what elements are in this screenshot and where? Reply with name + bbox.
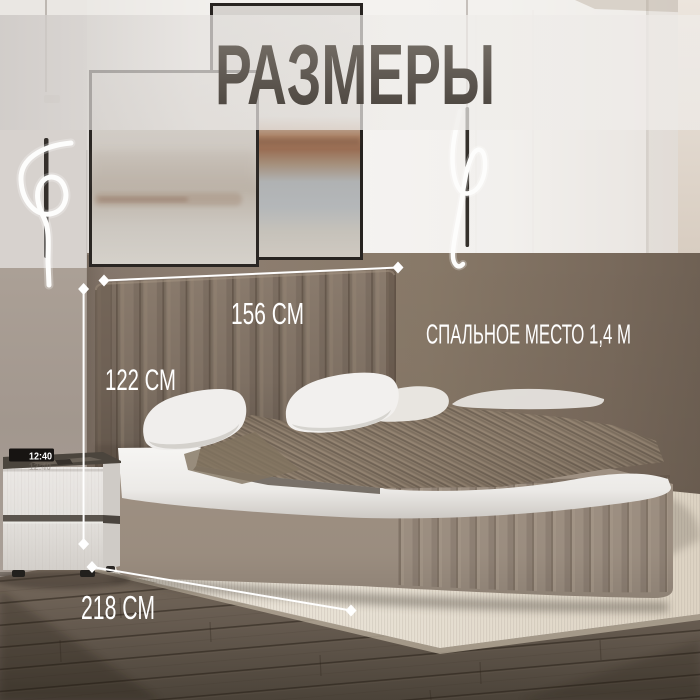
svg-text:СПАЛЬНОЕ МЕСТО 1,4 М: СПАЛЬНОЕ МЕСТО 1,4 М [426, 319, 631, 350]
svg-text:122 СМ: 122 СМ [105, 364, 176, 397]
svg-text:218 СМ: 218 СМ [81, 589, 155, 626]
svg-text:РАЗМЕРЫ: РАЗМЕРЫ [215, 28, 495, 123]
svg-text:12:40: 12:40 [29, 462, 51, 473]
svg-text:12:40: 12:40 [29, 451, 52, 463]
svg-text:156 СМ: 156 СМ [231, 296, 304, 331]
